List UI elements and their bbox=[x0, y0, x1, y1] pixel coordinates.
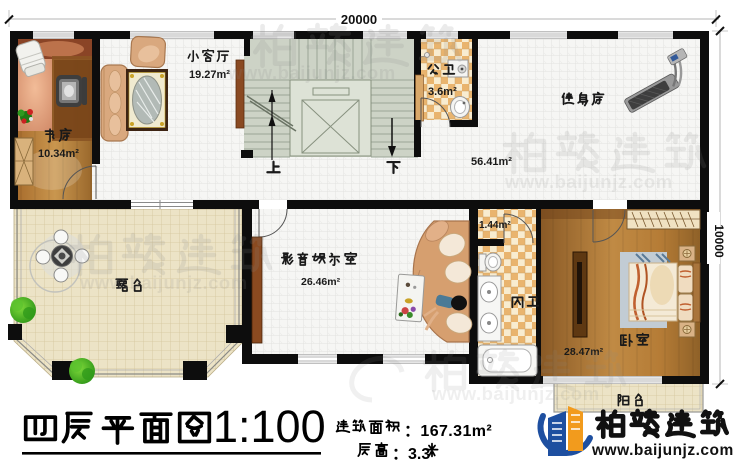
svg-text:19.27m²: 19.27m² bbox=[189, 69, 230, 81]
svg-text:www.baijunjz.com: www.baijunjz.com bbox=[79, 272, 248, 293]
svg-text:3.6m²: 3.6m² bbox=[428, 86, 457, 98]
svg-text:10000: 10000 bbox=[712, 224, 726, 258]
svg-text:www.baijunjz.com: www.baijunjz.com bbox=[504, 171, 673, 192]
svg-text:：3.3: ：3.3 bbox=[392, 446, 430, 463]
svg-text:10.34m²: 10.34m² bbox=[38, 148, 79, 160]
svg-text:www.baijunjz.com: www.baijunjz.com bbox=[431, 383, 600, 404]
svg-text:1:100: 1:100 bbox=[213, 401, 326, 452]
svg-text:www.baijunjz.com: www.baijunjz.com bbox=[227, 62, 396, 83]
svg-text:：167.31m²: ：167.31m² bbox=[404, 423, 492, 440]
svg-text:1.44m²: 1.44m² bbox=[479, 220, 511, 231]
svg-text:www.baijunjz.com: www.baijunjz.com bbox=[591, 442, 734, 459]
svg-text:26.46m²: 26.46m² bbox=[301, 276, 341, 288]
svg-text:20000: 20000 bbox=[341, 12, 377, 27]
